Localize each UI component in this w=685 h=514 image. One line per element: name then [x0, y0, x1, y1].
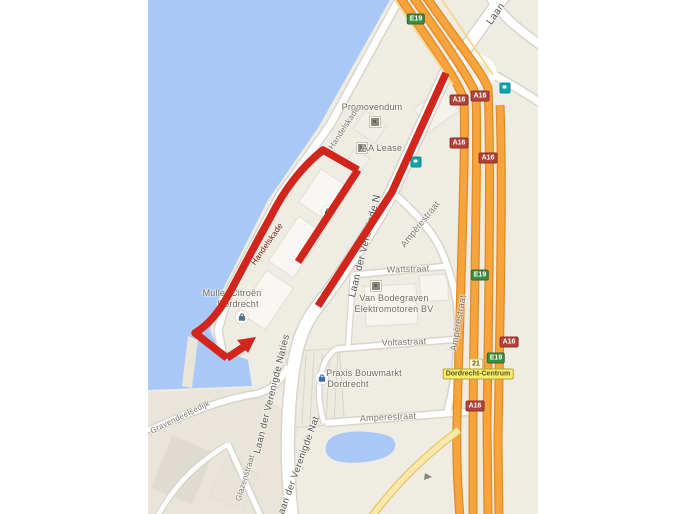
- building-icon-van-bodegraven[interactable]: [371, 281, 381, 291]
- transit-stop-icon-2[interactable]: [411, 157, 422, 168]
- transit-stop-icon-1[interactable]: [500, 83, 511, 94]
- building-icon-promovendum[interactable]: [370, 117, 380, 127]
- road-badge-a16-3: A16: [450, 138, 469, 149]
- poi-label-van-bodegraven-2[interactable]: Elektromotoren BV: [355, 304, 434, 314]
- street-label-wattstraat: Wattstraat: [386, 263, 429, 274]
- road-badge-e19-north: E19: [407, 14, 425, 25]
- road-badge-a16-6: A16: [466, 401, 485, 412]
- poi-label-muller-citroen[interactable]: Muller Citroën: [203, 288, 262, 298]
- shopping-bag-icon-1[interactable]: [322, 206, 335, 219]
- road-badge-a16-2: A16: [471, 91, 490, 102]
- map-canvas[interactable]: Promovendum AA Lease Handelskade Handels…: [148, 0, 538, 514]
- road-badge-e19-south: E19: [487, 353, 505, 364]
- poi-label-aa-lease[interactable]: AA Lease: [362, 143, 402, 153]
- road-badge-a16-1: A16: [450, 95, 469, 106]
- map-base-graphics: [148, 0, 538, 514]
- poi-label-van-bodegraven[interactable]: Van Bodegraven: [359, 293, 428, 303]
- road-badge-a16-4: A16: [479, 153, 498, 164]
- poi-label-muller-citroen-2[interactable]: Dordrecht: [217, 299, 258, 309]
- poi-label-praxis-2[interactable]: Dordrecht: [327, 379, 368, 389]
- street-label-voltastraat: Voltastraat: [381, 336, 426, 348]
- road-badge-e19-mid: E19: [471, 270, 489, 281]
- shopping-bag-icon-muller[interactable]: [236, 311, 249, 324]
- screenshot-page: Promovendum AA Lease Handelskade Handels…: [0, 0, 685, 514]
- poi-label-praxis[interactable]: Praxis Bouwmarkt: [326, 368, 402, 378]
- destination-badge-dordrecht-centrum: Dordrecht-Centrum: [443, 369, 514, 380]
- road-badge-a16-5: A16: [500, 337, 519, 348]
